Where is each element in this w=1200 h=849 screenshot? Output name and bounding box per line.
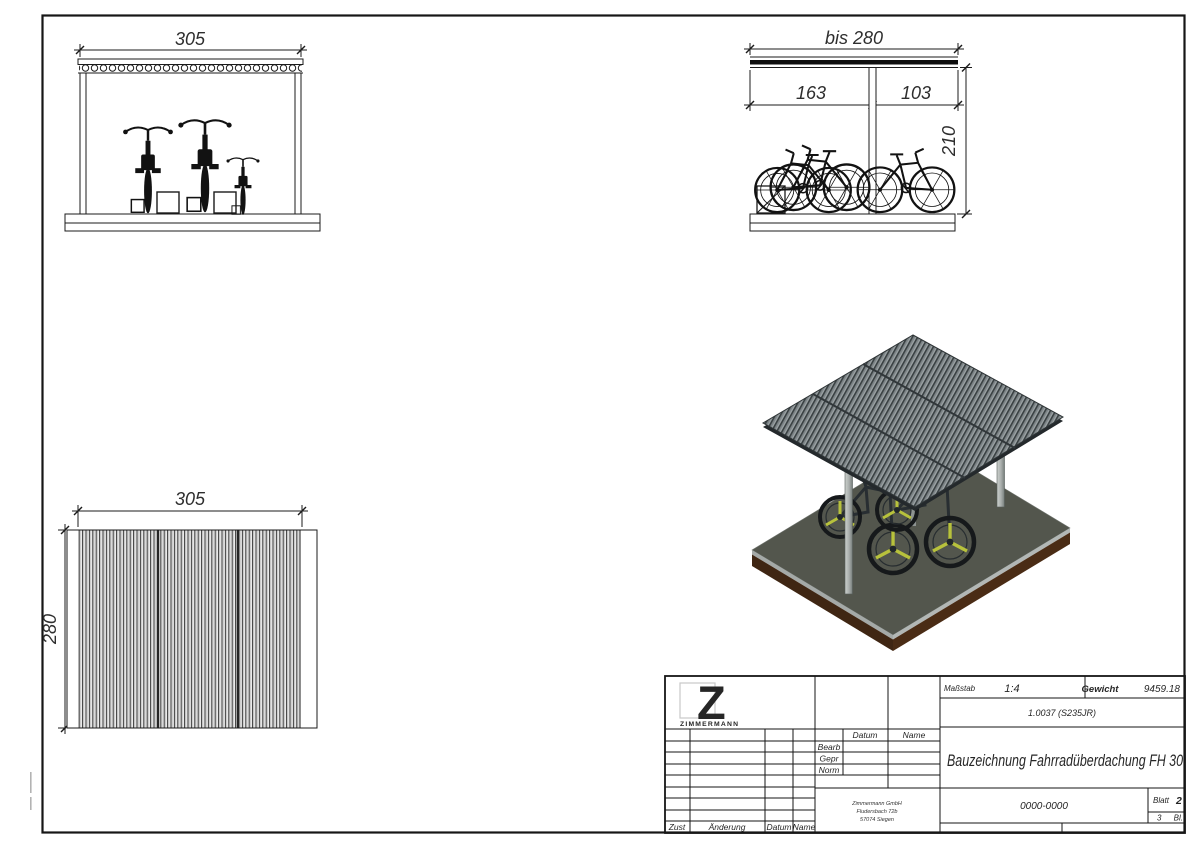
rev-aenderung-label: Änderung: [708, 822, 746, 832]
weight-label: Gewicht: [1082, 684, 1120, 695]
side-roof: [750, 57, 958, 68]
revision-table: Zust Änderung Datum Name: [665, 729, 816, 833]
approval-norm-label: Norm: [819, 765, 840, 775]
top-dim-depth-label: 280: [40, 614, 60, 645]
rev-datum-label: Datum: [766, 822, 791, 832]
company-logo: Z ZIMMERMANN: [680, 676, 739, 729]
side-dim-total-label: bis 280: [825, 28, 883, 48]
title-block-right: Maßstab 1:4 Gewicht 9459.18 1.0037 (S235…: [940, 676, 1185, 833]
sheet-number: 2: [1175, 795, 1182, 807]
iso-roof: [763, 335, 1063, 511]
front-base: [65, 214, 320, 231]
rev-zust-label: Zust: [668, 822, 686, 832]
side-bicycles: [755, 145, 954, 213]
top-dim-width-label: 305: [175, 489, 206, 509]
sheet-label: Blatt: [1153, 796, 1170, 805]
side-dim-height: 210: [939, 64, 972, 219]
cad-drawing: 305 bis 280: [0, 0, 1200, 849]
rev-name-label: Name: [793, 822, 816, 832]
front-dim-width-label: 305: [175, 29, 206, 49]
side-dim-height-label: 210: [939, 126, 959, 157]
front-dim-width: 305: [74, 29, 307, 57]
front-post-right: [295, 73, 301, 214]
drawing-sheet: 305 bis 280: [0, 0, 1200, 849]
front-view: 305: [65, 29, 320, 231]
company-address-line1: Zimmermann GmbH: [851, 801, 902, 807]
side-view: bis 280 163 103 210: [744, 28, 972, 231]
top-dim-depth: 280: [40, 524, 69, 734]
approval-block: Datum Name Bearb Gepr Norm Zimmermann Gm…: [815, 730, 940, 823]
logo-company-name: ZIMMERMANN: [680, 721, 739, 728]
scale-value: 1:4: [1004, 683, 1019, 695]
weight-value: 9459.18: [1144, 684, 1181, 695]
sheet-total-label: Bl.: [1174, 814, 1183, 823]
sheet-total: 3: [1157, 814, 1162, 823]
front-roof-corrugation: [79, 65, 302, 73]
iso-view: [752, 335, 1070, 651]
side-dim-split: 163 103: [744, 70, 964, 111]
approval-bearb-label: Bearb: [818, 742, 841, 752]
approval-name-header: Name: [903, 730, 926, 740]
top-view: 305 280: [40, 489, 317, 734]
front-post-left: [80, 73, 86, 214]
approval-datum-header: Datum: [852, 730, 877, 740]
margin-watermark: [30, 772, 32, 810]
top-roof-corrugation: [78, 531, 300, 728]
company-address-line2: Fludersbach 72b: [857, 809, 898, 815]
drawing-number: 0000-0000: [1020, 801, 1068, 812]
side-dim-left-label: 163: [796, 83, 826, 103]
scale-label: Maßstab: [944, 684, 976, 693]
side-dim-right-label: 103: [901, 83, 931, 103]
company-address-line3: 57074 Siegen: [860, 817, 894, 823]
iso-post-left: [845, 470, 853, 594]
drawing-title: Bauzeichnung Fahrradüberdachung FH 30: [947, 751, 1183, 770]
side-base: [750, 214, 955, 231]
side-dim-total: bis 280: [744, 28, 964, 55]
top-dim-width: 305: [72, 489, 308, 527]
front-bicycles: [123, 120, 259, 215]
approval-gepr-label: Gepr: [820, 754, 840, 764]
material-value: 1.0037 (S235JR): [1028, 708, 1096, 718]
title-block: Zust Änderung Datum Name Datum Name Bear…: [665, 676, 1185, 833]
